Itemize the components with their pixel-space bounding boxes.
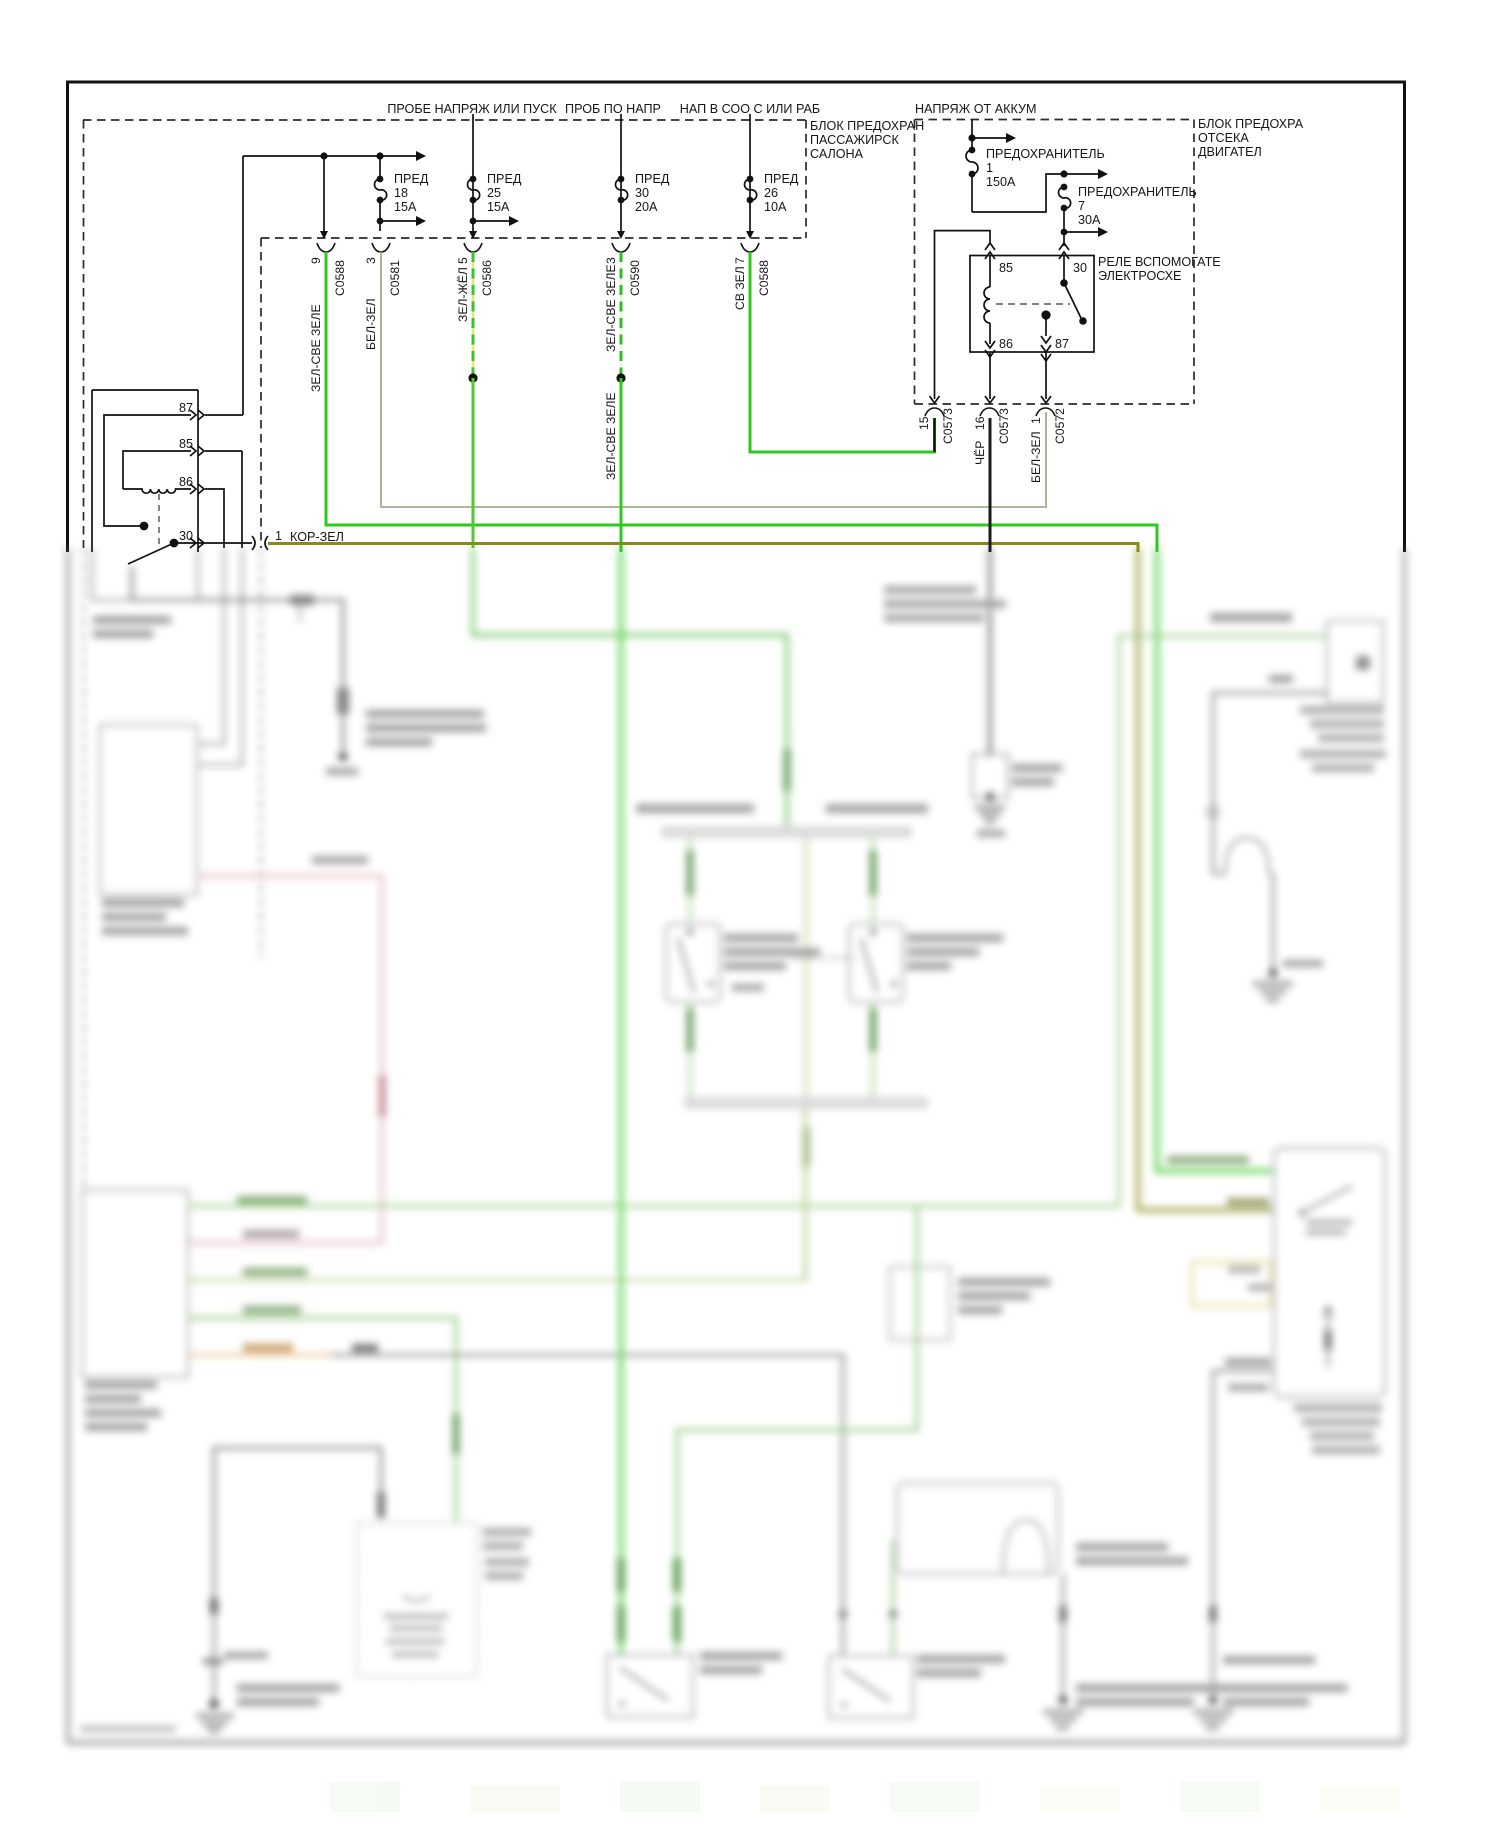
svg-text:16: 16 xyxy=(973,416,987,430)
svg-text:САЛОНА: САЛОНА xyxy=(810,147,864,161)
svg-text:9: 9 xyxy=(309,257,323,264)
svg-text:РЕЛЕ ВСПОМОГАТЕ: РЕЛЕ ВСПОМОГАТЕ xyxy=(1098,255,1221,269)
svg-text:C0581: C0581 xyxy=(388,260,402,296)
svg-text:СВ ЗЕЛ: СВ ЗЕЛ xyxy=(733,266,747,310)
svg-text:30: 30 xyxy=(635,186,649,200)
svg-text:C0588: C0588 xyxy=(757,260,771,296)
svg-text:ПРЕДОХРАНИТЕЛЬ: ПРЕДОХРАНИТЕЛЬ xyxy=(986,147,1105,161)
svg-text:C0588: C0588 xyxy=(333,260,347,296)
svg-text:ЧЁР: ЧЁР xyxy=(973,441,987,465)
svg-text:БЕЛ-ЗЕЛ: БЕЛ-ЗЕЛ xyxy=(364,298,378,350)
svg-text:30: 30 xyxy=(1073,261,1087,275)
svg-text:ПРЕД: ПРЕД xyxy=(635,172,670,186)
svg-text:85: 85 xyxy=(999,261,1013,275)
svg-text:ПРЕД: ПРЕД xyxy=(764,172,799,186)
svg-text:150А: 150А xyxy=(986,175,1016,189)
svg-text:НАП В СОО С ИЛИ РАБ: НАП В СОО С ИЛИ РАБ xyxy=(680,102,820,116)
svg-text:30А: 30А xyxy=(1078,213,1101,227)
svg-text:ЗЕЛ-СВЕ ЗЕЛЕ: ЗЕЛ-СВЕ ЗЕЛЕ xyxy=(309,304,323,392)
svg-text:ПРЕД: ПРЕД xyxy=(394,172,429,186)
svg-text:15А: 15А xyxy=(487,200,510,214)
svg-text:ЗЕЛ-СВЕ ЗЕЛЕ: ЗЕЛ-СВЕ ЗЕЛЕ xyxy=(604,392,618,480)
svg-text:ПРОБ ПО НАПР: ПРОБ ПО НАПР xyxy=(565,102,661,116)
svg-text:5: 5 xyxy=(456,257,470,264)
svg-text:87: 87 xyxy=(179,401,193,415)
svg-text:1: 1 xyxy=(986,161,993,175)
svg-text:ДВИГАТЕЛ: ДВИГАТЕЛ xyxy=(1198,145,1262,159)
svg-text:18: 18 xyxy=(394,186,408,200)
svg-text:86: 86 xyxy=(999,337,1013,351)
svg-text:БЛОК ПРЕДОХРАН: БЛОК ПРЕДОХРАН xyxy=(810,119,924,133)
svg-text:C0573: C0573 xyxy=(941,408,955,444)
svg-text:1: 1 xyxy=(1029,417,1043,424)
svg-text:85: 85 xyxy=(179,437,193,451)
svg-text:C0572: C0572 xyxy=(1053,408,1067,444)
svg-text:87: 87 xyxy=(1055,337,1069,351)
svg-text:ЭЛЕКТРОСХЕ: ЭЛЕКТРОСХЕ xyxy=(1098,269,1181,283)
svg-text:20А: 20А xyxy=(635,200,658,214)
svg-text:1: 1 xyxy=(275,529,282,543)
svg-text:25: 25 xyxy=(487,186,501,200)
svg-text:7: 7 xyxy=(1078,199,1085,213)
svg-text:ПРЕД: ПРЕД xyxy=(487,172,522,186)
svg-text:15: 15 xyxy=(917,416,931,430)
svg-text:26: 26 xyxy=(764,186,778,200)
svg-text:10А: 10А xyxy=(764,200,787,214)
svg-text:КОР-ЗЕЛ: КОР-ЗЕЛ xyxy=(290,530,344,544)
svg-text:ПРОБЕ НАПРЯЖ ИЛИ ПУСК: ПРОБЕ НАПРЯЖ ИЛИ ПУСК xyxy=(387,102,557,116)
svg-text:3: 3 xyxy=(364,257,378,264)
svg-text:ЗЕЛ-СВЕ ЗЕЛЕ: ЗЕЛ-СВЕ ЗЕЛЕ xyxy=(604,264,618,352)
svg-text:C0573: C0573 xyxy=(997,408,1011,444)
svg-text:ЗЕЛ-ЖЁЛ: ЗЕЛ-ЖЁЛ xyxy=(456,267,470,322)
svg-text:ПАССАЖИРСК: ПАССАЖИРСК xyxy=(810,133,900,147)
svg-text:ПРЕДОХРАНИТЕЛЬ: ПРЕДОХРАНИТЕЛЬ xyxy=(1078,185,1197,199)
svg-text:НАПРЯЖ ОТ АККУМ: НАПРЯЖ ОТ АККУМ xyxy=(915,102,1036,116)
svg-text:15А: 15А xyxy=(394,200,417,214)
svg-text:86: 86 xyxy=(179,475,193,489)
svg-text:3: 3 xyxy=(604,257,618,264)
svg-text:30: 30 xyxy=(179,529,193,543)
svg-text:ОТСЕКА: ОТСЕКА xyxy=(1198,131,1249,145)
svg-text:БЛОК ПРЕДОХРА: БЛОК ПРЕДОХРА xyxy=(1198,117,1304,131)
svg-text:БЕЛ-ЗЕЛ: БЕЛ-ЗЕЛ xyxy=(1029,431,1043,483)
svg-text:C0590: C0590 xyxy=(628,260,642,296)
svg-text:7: 7 xyxy=(733,257,747,264)
svg-text:C0586: C0586 xyxy=(480,260,494,296)
